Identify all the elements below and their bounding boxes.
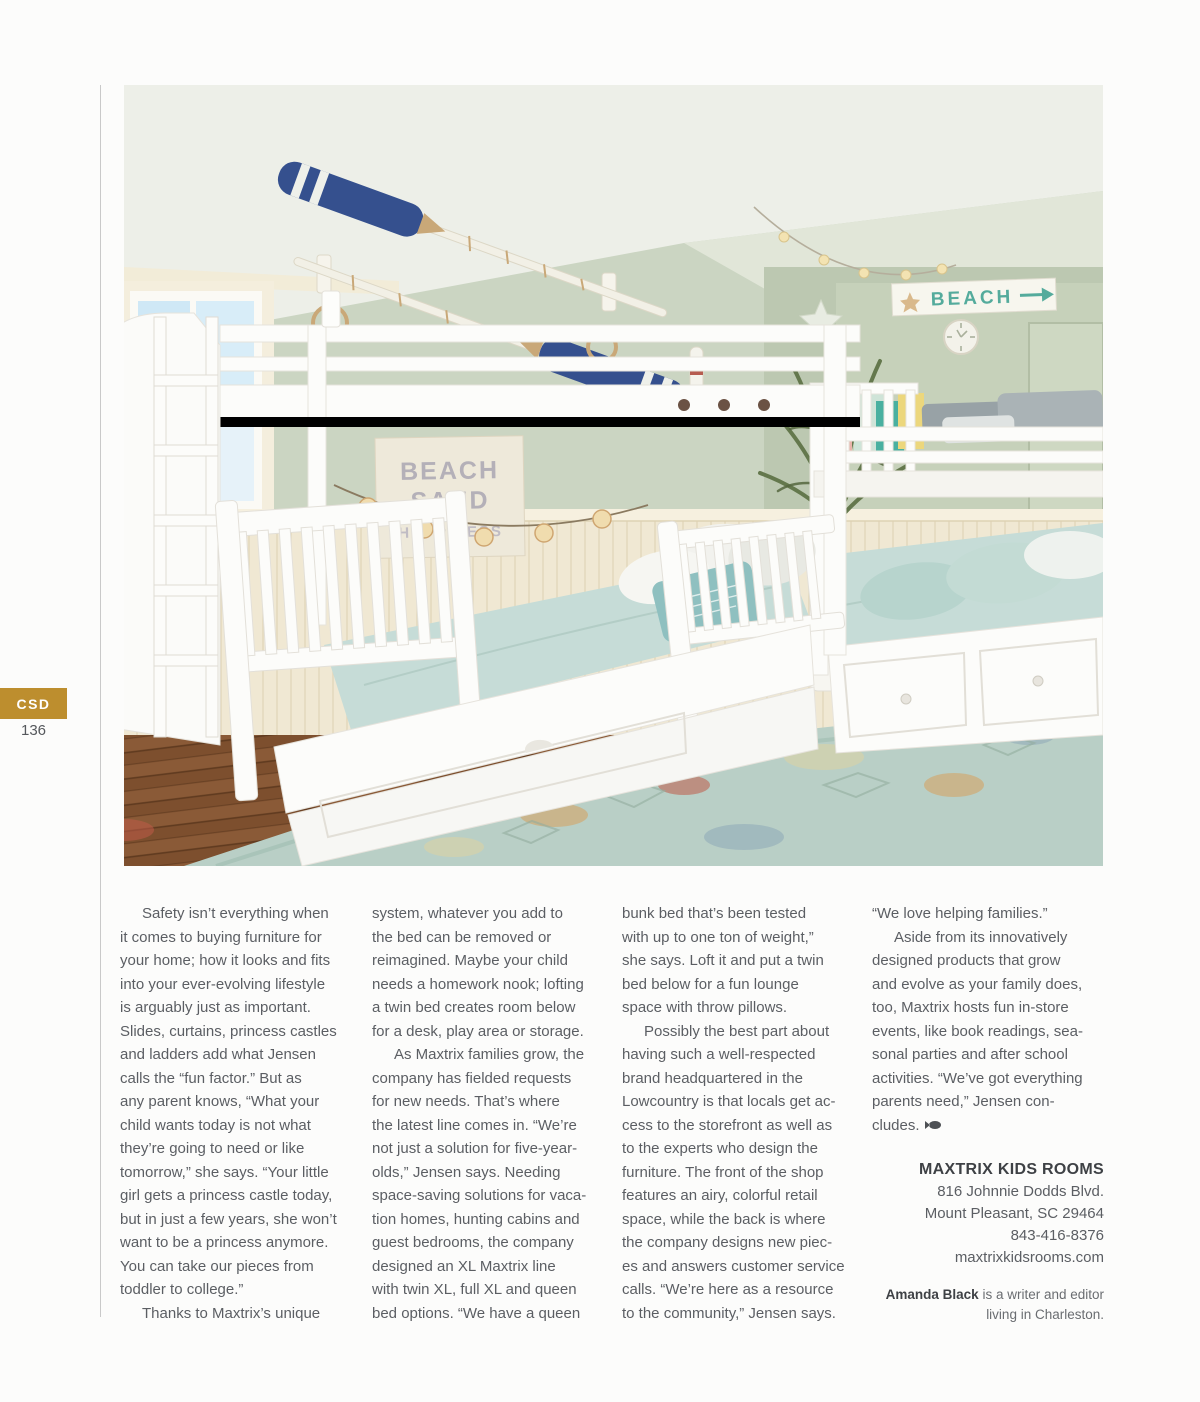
paragraph: Possibly the best part about having such… <box>622 1020 854 1326</box>
author-byline: Amanda Black is a writer and editor livi… <box>872 1285 1104 1325</box>
section-tab: CSD <box>0 688 67 719</box>
paragraph: Safety isn’t everything when it comes to… <box>120 902 352 1302</box>
article-column-2: system, whatever you add to the bed can … <box>372 902 604 1325</box>
paragraph-text: Aside from its innovatively designed pro… <box>872 929 1083 1134</box>
article-column-3: bunk bed that’s been tested with up to o… <box>622 902 854 1325</box>
magazine-page: { "page": { "tab_label": "CSD", "page_nu… <box>0 0 1200 1402</box>
end-mark-fish-icon <box>925 1120 941 1130</box>
paragraph: bunk bed that’s been tested with up to o… <box>622 902 854 1020</box>
page-number: 136 <box>0 722 67 739</box>
author-name: Amanda Black <box>886 1287 979 1302</box>
contact-website: maxtrixkidsrooms.com <box>872 1247 1104 1269</box>
left-margin-rule <box>100 85 101 1317</box>
right-bunk-bed <box>810 383 1103 753</box>
paragraph: system, whatever you add to the bed can … <box>372 902 604 1043</box>
paragraph: “We love helping families.” <box>872 902 1104 926</box>
paragraph: Thanks to Maxtrix’s unique <box>120 1302 352 1326</box>
sand-dollar-clock <box>944 320 978 354</box>
wall-art-line1: BEACH <box>400 456 499 486</box>
author-description: is a writer and editor living in Charles… <box>979 1287 1104 1322</box>
contact-block: MAXTRIX KIDS ROOMS 816 Johnnie Dodds Blv… <box>872 1159 1104 1269</box>
contact-phone: 843-416-8376 <box>872 1225 1104 1247</box>
beach-sign: BEACH <box>891 278 1056 316</box>
beach-sign-text: BEACH <box>930 287 1013 311</box>
paragraph: Aside from its innovatively designed pro… <box>872 926 1104 1138</box>
room-photo: BEACH <box>124 85 1103 866</box>
contact-name: MAXTRIX KIDS ROOMS <box>872 1159 1104 1181</box>
section-tab-label: CSD <box>16 696 50 712</box>
article-column-4: “We love helping families.” Aside from i… <box>872 902 1104 1325</box>
article-column-1: Safety isn’t everything when it comes to… <box>120 902 352 1325</box>
contact-address-line1: 816 Johnnie Dodds Blvd. <box>872 1181 1104 1203</box>
paragraph: As Maxtrix families grow, the company ha… <box>372 1043 604 1325</box>
contact-address-line2: Mount Pleasant, SC 29464 <box>872 1203 1104 1225</box>
